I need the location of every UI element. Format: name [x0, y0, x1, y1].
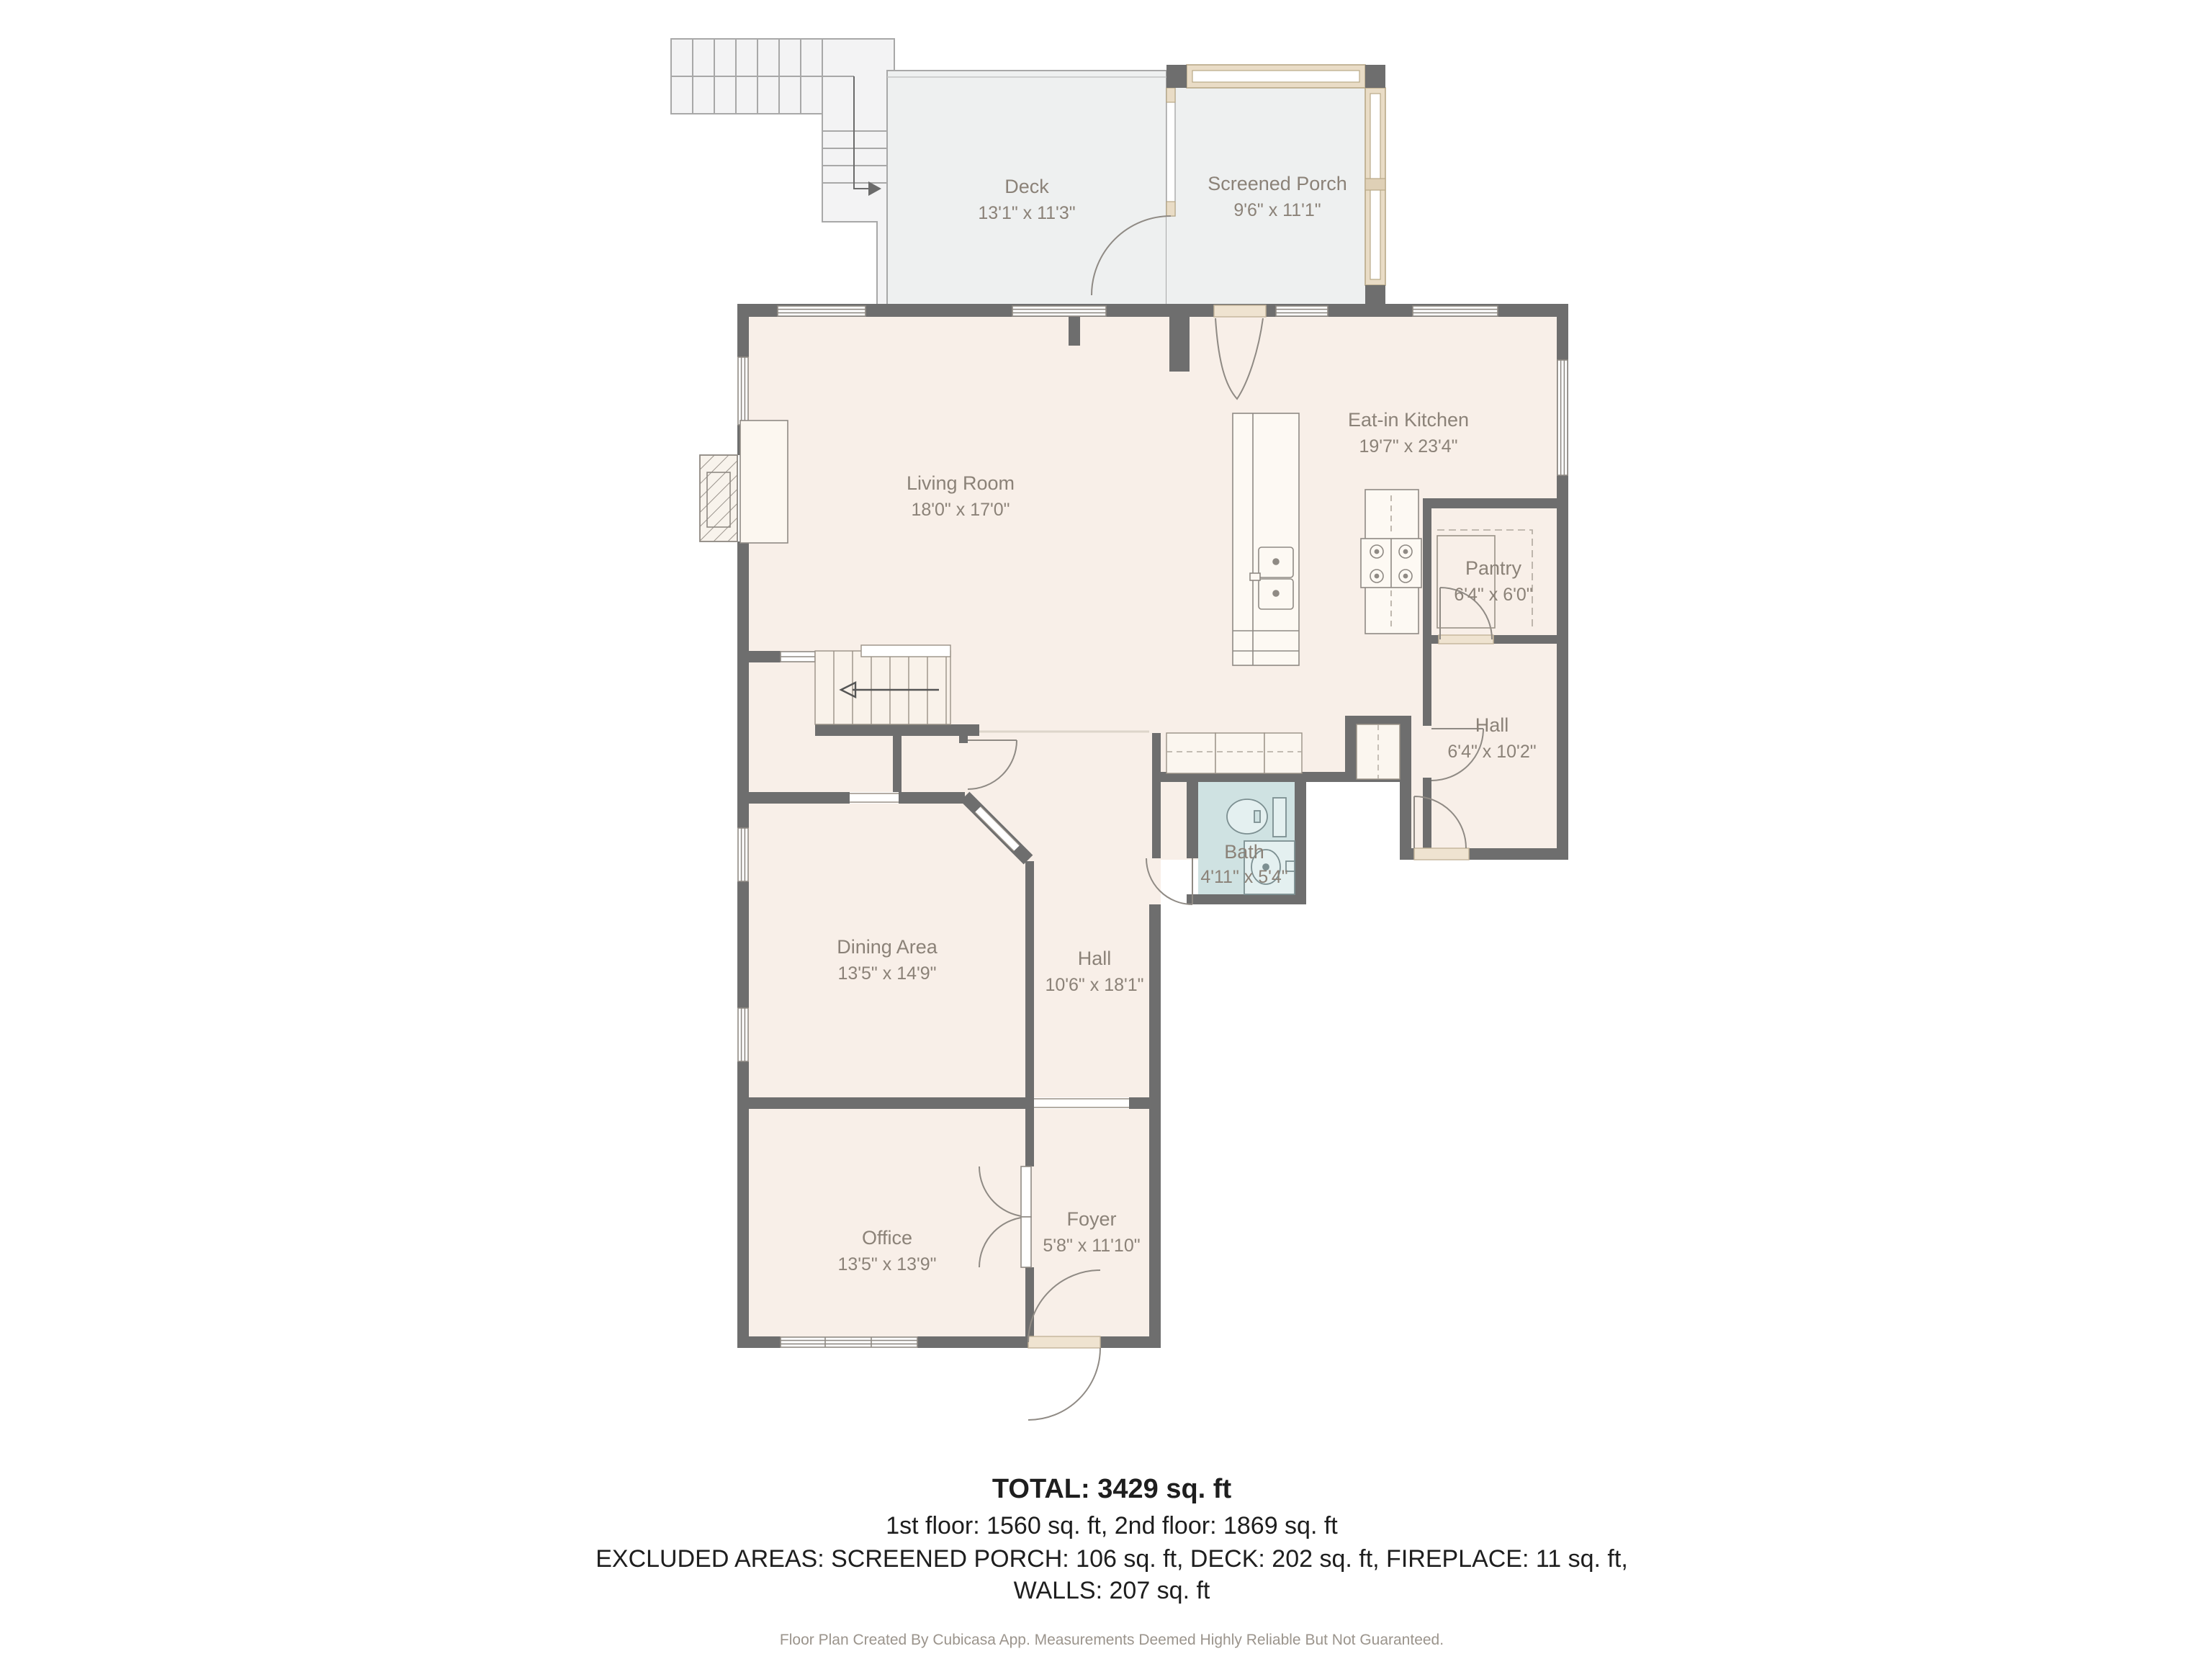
window-left-living: [738, 357, 748, 425]
floor-plan-canvas: Deck 13'1" x 11'3" Screened Porch 9'6" x…: [0, 0, 2212, 1659]
porch-label: Screened Porch: [1208, 173, 1347, 194]
stair-railing: [861, 645, 950, 657]
window-right-kitchen: [1557, 360, 1568, 475]
footer-disclaimer: Floor Plan Created By Cubicasa App. Meas…: [780, 1632, 1444, 1648]
summary-floors: 1st floor: 1560 sq. ft, 2nd floor: 1869 …: [886, 1512, 1338, 1539]
window-landing: [781, 652, 815, 662]
entry-closet: [1357, 724, 1400, 779]
interior-stairs: [815, 645, 950, 724]
window-left-dining-1: [738, 828, 748, 881]
living-room-label: Living Room: [907, 472, 1015, 494]
pantry-label: Pantry: [1465, 557, 1522, 579]
hall-center-dims: 10'6" x 18'1": [1045, 975, 1143, 995]
kitchen-dims: 19'7" x 23'4": [1359, 436, 1457, 457]
toilet: [1227, 798, 1286, 837]
deck-label: Deck: [1004, 176, 1049, 197]
foyer-dims: 5'8" x 11'10": [1043, 1236, 1140, 1256]
summary-total: TOTAL: 3429 sq. ft: [992, 1474, 1232, 1504]
living-room-dims: 18'0" x 17'0": [911, 500, 1010, 520]
summary-excluded: EXCLUDED AREAS: SCREENED PORCH: 106 sq. …: [595, 1545, 1628, 1573]
hall-center-label: Hall: [1078, 948, 1112, 969]
deck-dims: 13'1" x 11'3": [978, 203, 1075, 223]
kitchen-label: Eat-in Kitchen: [1348, 409, 1469, 431]
front-door-threshold: [1028, 1336, 1100, 1348]
hall-right-dims: 6'4" x 10'2": [1447, 742, 1536, 762]
hall-right-label: Hall: [1475, 714, 1509, 736]
summary-walls: WALLS: 207 sq. ft: [1014, 1577, 1210, 1604]
window-top-3: [1276, 306, 1328, 316]
kitchen-island: [1233, 413, 1299, 665]
hall-right-threshold: [1414, 848, 1469, 860]
fireplace: [700, 421, 788, 543]
exterior-stairs: [671, 39, 894, 305]
bath-label: Bath: [1224, 841, 1264, 863]
fireplace-hearth: [740, 421, 788, 543]
porch-kitchen-threshold: [1214, 305, 1266, 317]
pantry-dims: 6'4" x 6'0": [1454, 585, 1532, 605]
porch-dims: 9'6" x 11'1": [1233, 200, 1321, 220]
french-door-leaves: [1021, 1166, 1031, 1267]
office-label: Office: [862, 1227, 912, 1249]
window-left-dining-2: [738, 1008, 748, 1061]
pantry-threshold: [1439, 635, 1493, 644]
office-dims: 13'5" x 13'9": [837, 1254, 936, 1274]
front-door-outer-arc: [1028, 1348, 1100, 1420]
window-top-2: [1012, 306, 1106, 316]
floor-plan-page: Deck 13'1" x 11'3" Screened Porch 9'6" x…: [0, 0, 2212, 1659]
dining-dims: 13'5" x 14'9": [837, 963, 936, 984]
foyer-label: Foyer: [1066, 1208, 1116, 1230]
mudroom-cabinets: [1166, 733, 1302, 773]
window-top-1: [778, 306, 866, 316]
kitchen-range-counter: [1361, 490, 1421, 634]
bath-dims: 4'11" x 5'4": [1200, 867, 1287, 887]
window-top-4: [1413, 306, 1498, 316]
dining-label: Dining Area: [837, 936, 938, 958]
window-office: [781, 1337, 917, 1347]
summary-block: TOTAL: 3429 sq. ft 1st floor: 1560 sq. f…: [595, 1474, 1628, 1648]
island-faucet: [1250, 573, 1260, 580]
